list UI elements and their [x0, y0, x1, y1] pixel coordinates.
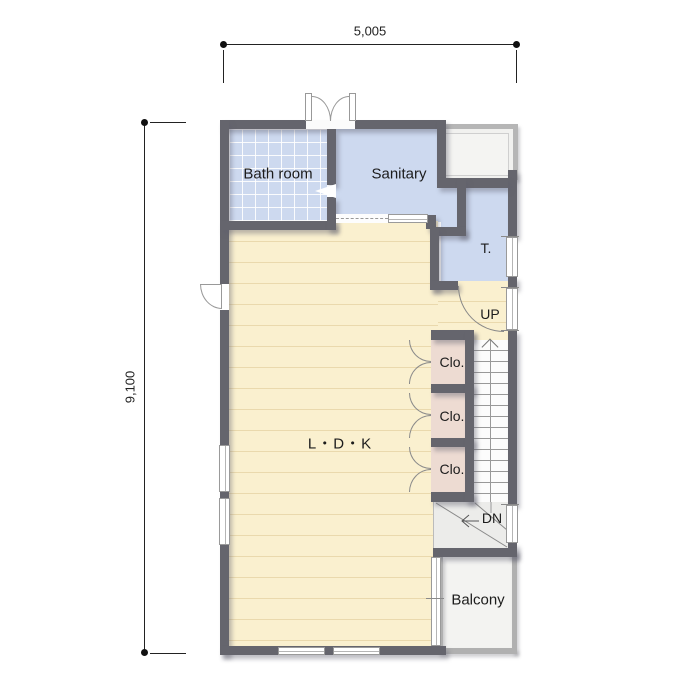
balcony-rail-bottom	[438, 648, 517, 654]
double-door-swing-right	[330, 96, 349, 121]
down-arrow-icon	[461, 513, 481, 529]
wall-toilet-top	[437, 178, 508, 188]
wall-box-left	[437, 120, 446, 178]
double-door-leaf-right	[349, 93, 356, 121]
window-tick	[426, 598, 444, 599]
room-label-toilet: T.	[481, 240, 492, 256]
dimension-height-value: 9,100	[123, 371, 138, 404]
floor-plan: Bath room Sanitary T. UP Clo. Clo. Clo. …	[0, 0, 680, 680]
dimension-dot	[513, 41, 520, 48]
wall-left	[220, 120, 229, 655]
stair-label-up: UP	[480, 306, 499, 322]
window-right-3	[506, 505, 518, 543]
window-balcony-door	[431, 557, 441, 646]
wall-landing-bottom	[433, 548, 517, 557]
room-label-bathroom: Bath room	[243, 166, 312, 183]
dimension-line-width	[223, 44, 516, 45]
balcony-rail-right	[512, 551, 517, 653]
window-bottom-1	[278, 647, 325, 655]
wall-right-1	[508, 170, 517, 237]
double-door-leaf-left	[305, 93, 312, 121]
staircase	[474, 340, 508, 502]
room-label-balcony: Balcony	[451, 592, 504, 609]
sanitary-opening	[388, 214, 428, 223]
entry-double-door-gap	[306, 120, 355, 129]
dimension-dot	[220, 41, 227, 48]
dimension-witness-line	[150, 122, 186, 123]
dimension-witness-line	[223, 50, 224, 83]
room-label-sanitary: Sanitary	[371, 166, 426, 183]
wall-bathroom-bottom	[220, 221, 336, 230]
window-tick	[501, 504, 519, 505]
wall-toilet-bottom	[430, 281, 458, 290]
stair-center-line	[490, 340, 491, 502]
sanitary-dashed-boundary	[336, 214, 388, 223]
stair-label-down: DN	[482, 510, 502, 526]
dimension-width-value: 5,005	[354, 24, 387, 39]
window-left-2	[219, 498, 230, 545]
window-right-2	[506, 288, 518, 330]
window-bottom-2	[333, 647, 380, 655]
wall-bath-partition-upper	[327, 129, 336, 185]
dimension-witness-line	[150, 653, 186, 654]
dimension-line-height	[144, 122, 145, 653]
porch-void-inner	[441, 133, 509, 176]
wall-bath-partition-lower	[327, 197, 336, 230]
room-label-closet-1: Clo.	[440, 354, 465, 370]
side-door	[200, 284, 222, 309]
wall-right-3	[508, 330, 517, 505]
window-left-1	[219, 445, 230, 492]
room-label-closet-3: Clo.	[440, 461, 465, 477]
window-right-1	[506, 237, 518, 277]
dimension-dot	[141, 119, 148, 126]
dimension-witness-line	[516, 50, 517, 83]
room-label-closet-2: Clo.	[440, 408, 465, 424]
double-door-swing-left	[312, 96, 331, 121]
wall-stair-west	[465, 330, 474, 502]
dimension-dot	[141, 649, 148, 656]
room-label-ldk: L・D・K	[308, 433, 372, 454]
window-tick	[501, 236, 519, 237]
porch-void	[437, 124, 518, 180]
